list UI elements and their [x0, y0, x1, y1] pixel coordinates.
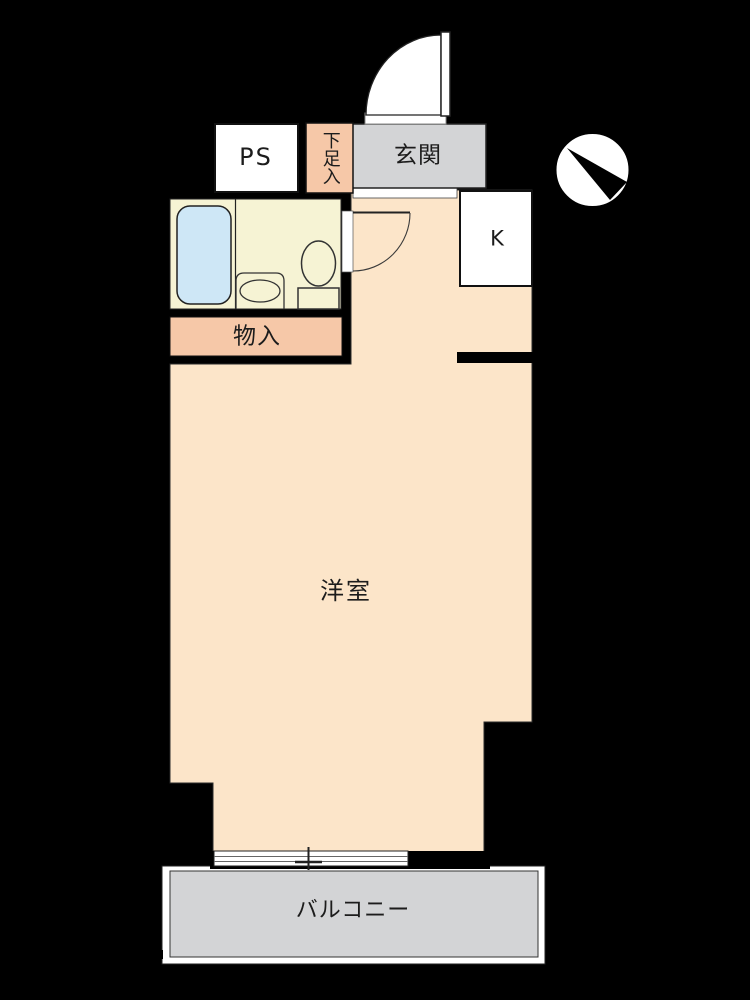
western-room-label: 洋室 [320, 579, 372, 605]
bathroom-area [170, 199, 341, 309]
entrance-door-swing-arc [366, 35, 441, 115]
entrance-door-icon [365, 32, 450, 124]
kitchen-label: K [490, 228, 504, 251]
window-frame [214, 851, 408, 866]
entrance-step-edge [353, 188, 457, 198]
storage-label: 物入 [233, 325, 281, 350]
entrance-door-leaf [441, 32, 450, 116]
shoe-box-label: 下足入 [320, 131, 339, 185]
wall-stub [457, 352, 543, 363]
floor-plan-canvas: PS 下足入 玄関 K 物入 洋室 バルコニー [0, 0, 750, 1000]
ps-label: PS [239, 145, 273, 171]
bathroom-door-opening [342, 211, 353, 272]
floor-plan-drawing [0, 0, 750, 1000]
bathtub-icon [177, 206, 231, 304]
entrance-label: 玄関 [394, 144, 442, 169]
balcony-wall-tick [147, 950, 163, 959]
compass-icon [555, 133, 630, 208]
balcony-label: バルコニー [296, 899, 411, 923]
